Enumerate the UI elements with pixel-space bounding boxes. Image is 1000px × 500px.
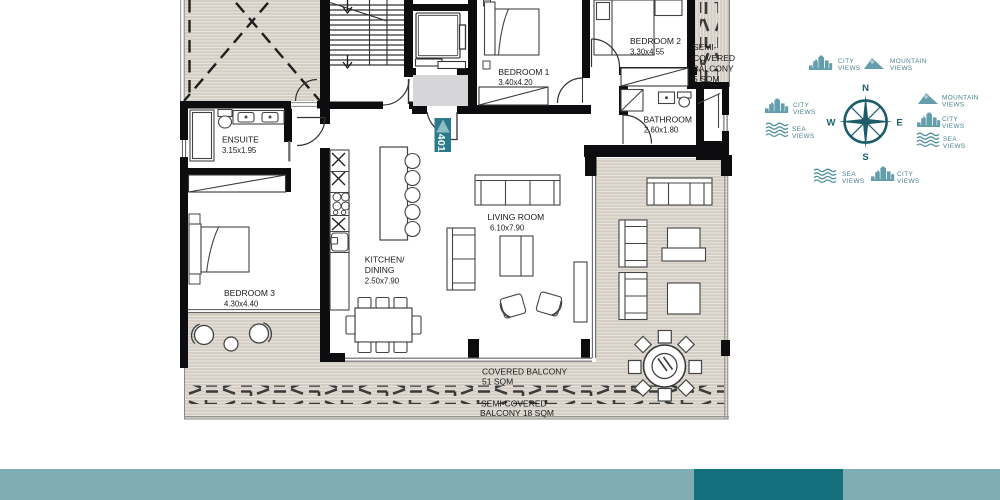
svg-text:VIEWS: VIEWS (838, 65, 861, 72)
svg-text:CITY: CITY (942, 116, 958, 123)
svg-text:2.50x7.90: 2.50x7.90 (365, 276, 400, 285)
svg-text:S: S (862, 152, 868, 163)
svg-text:VIEWS: VIEWS (792, 133, 815, 140)
svg-text:51 SQM: 51 SQM (482, 376, 513, 386)
svg-text:N: N (862, 83, 869, 94)
svg-text:SEMI-COVERED: SEMI-COVERED (481, 399, 547, 409)
svg-text:CITY: CITY (897, 171, 913, 178)
svg-text:ENSUITE: ENSUITE (222, 135, 259, 145)
svg-text:6.10x7.90: 6.10x7.90 (490, 223, 525, 232)
svg-text:5 SQM: 5 SQM (693, 74, 719, 84)
svg-text:VIEWS: VIEWS (793, 109, 816, 116)
svg-text:SEMI-: SEMI- (693, 42, 717, 52)
svg-text:COVERED BALCONY: COVERED BALCONY (482, 367, 567, 377)
svg-text:SEA: SEA (943, 136, 957, 143)
svg-text:VIEWS: VIEWS (842, 178, 865, 185)
svg-text:BEDROOM 2: BEDROOM 2 (630, 36, 681, 46)
svg-text:MOUNTAIN: MOUNTAIN (890, 58, 927, 65)
svg-text:BEDROOM 3: BEDROOM 3 (224, 288, 275, 298)
svg-text:3.30x4.55: 3.30x4.55 (630, 47, 665, 56)
svg-text:LIVING ROOM: LIVING ROOM (488, 212, 545, 222)
svg-text:SEA: SEA (842, 171, 856, 178)
svg-text:CITY: CITY (838, 58, 854, 65)
svg-text:VIEWS: VIEWS (897, 178, 920, 185)
svg-text:E: E (896, 118, 902, 129)
svg-text:BALCONY: BALCONY (693, 64, 734, 74)
svg-text:VIEWS: VIEWS (943, 143, 966, 150)
svg-text:DINING: DINING (365, 265, 395, 275)
svg-text:MOUNTAIN: MOUNTAIN (942, 95, 979, 102)
svg-text:W: W (827, 118, 836, 129)
svg-text:3.40x4.20: 3.40x4.20 (498, 78, 533, 87)
svg-text:CITY: CITY (793, 102, 809, 109)
svg-text:BALCONY 18 SQM: BALCONY 18 SQM (480, 408, 554, 418)
svg-text:BATHROOM: BATHROOM (644, 114, 692, 124)
svg-text:401: 401 (435, 134, 447, 152)
svg-text:COVERED: COVERED (693, 53, 735, 63)
svg-text:KITCHEN/: KITCHEN/ (365, 255, 405, 265)
svg-text:4.30x4.40: 4.30x4.40 (224, 300, 259, 309)
svg-text:3.15x1.95: 3.15x1.95 (222, 146, 257, 155)
svg-text:VIEWS: VIEWS (942, 102, 965, 109)
svg-text:VIEWS: VIEWS (890, 65, 913, 72)
svg-text:BEDROOM 1: BEDROOM 1 (498, 67, 549, 77)
svg-text:2.60x1.80: 2.60x1.80 (644, 126, 679, 135)
svg-text:VIEWS: VIEWS (942, 123, 965, 130)
svg-text:SEA: SEA (792, 126, 806, 133)
